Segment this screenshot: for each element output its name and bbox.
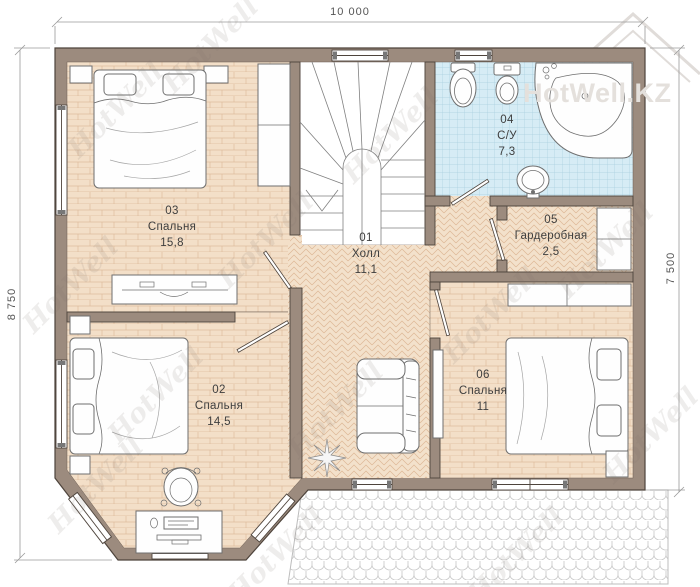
dimension-right: 7 500 (665, 243, 677, 293)
mirror (433, 350, 443, 438)
floor-plan-canvas: HotWell HotWell HotWell HotWell HotWell … (0, 0, 700, 587)
wardrobe-05 (597, 208, 631, 270)
floor-stairwell (300, 62, 425, 245)
dimension-left: 8 750 (6, 279, 18, 329)
dimension-top: 10 000 (325, 6, 375, 18)
nightstand (606, 451, 628, 477)
bed-02 (70, 338, 188, 454)
window-left-bedroom-03 (56, 105, 67, 215)
sofa (357, 359, 419, 453)
floor-doorway-03 (290, 235, 302, 288)
nightstand (70, 66, 92, 83)
nightstand (70, 316, 90, 334)
roof (288, 490, 668, 584)
watermark-logo: HotWell.KZ (523, 78, 672, 109)
toilet (494, 63, 520, 104)
nightstand (70, 456, 90, 474)
window-bottom-hall (352, 479, 392, 490)
window-left-bedroom-02 (56, 360, 67, 448)
window-bottom-bedroom-06 (492, 479, 568, 490)
bed-06 (506, 338, 628, 454)
window-top-bath (455, 50, 492, 61)
wardrobe-03 (258, 64, 290, 186)
bidet (450, 63, 476, 107)
dresser-03 (112, 275, 237, 304)
window-top-stair (332, 50, 388, 61)
desk (136, 511, 222, 553)
bed-03 (94, 70, 206, 188)
wardrobe-06 (508, 284, 631, 306)
nightstand (204, 66, 228, 83)
